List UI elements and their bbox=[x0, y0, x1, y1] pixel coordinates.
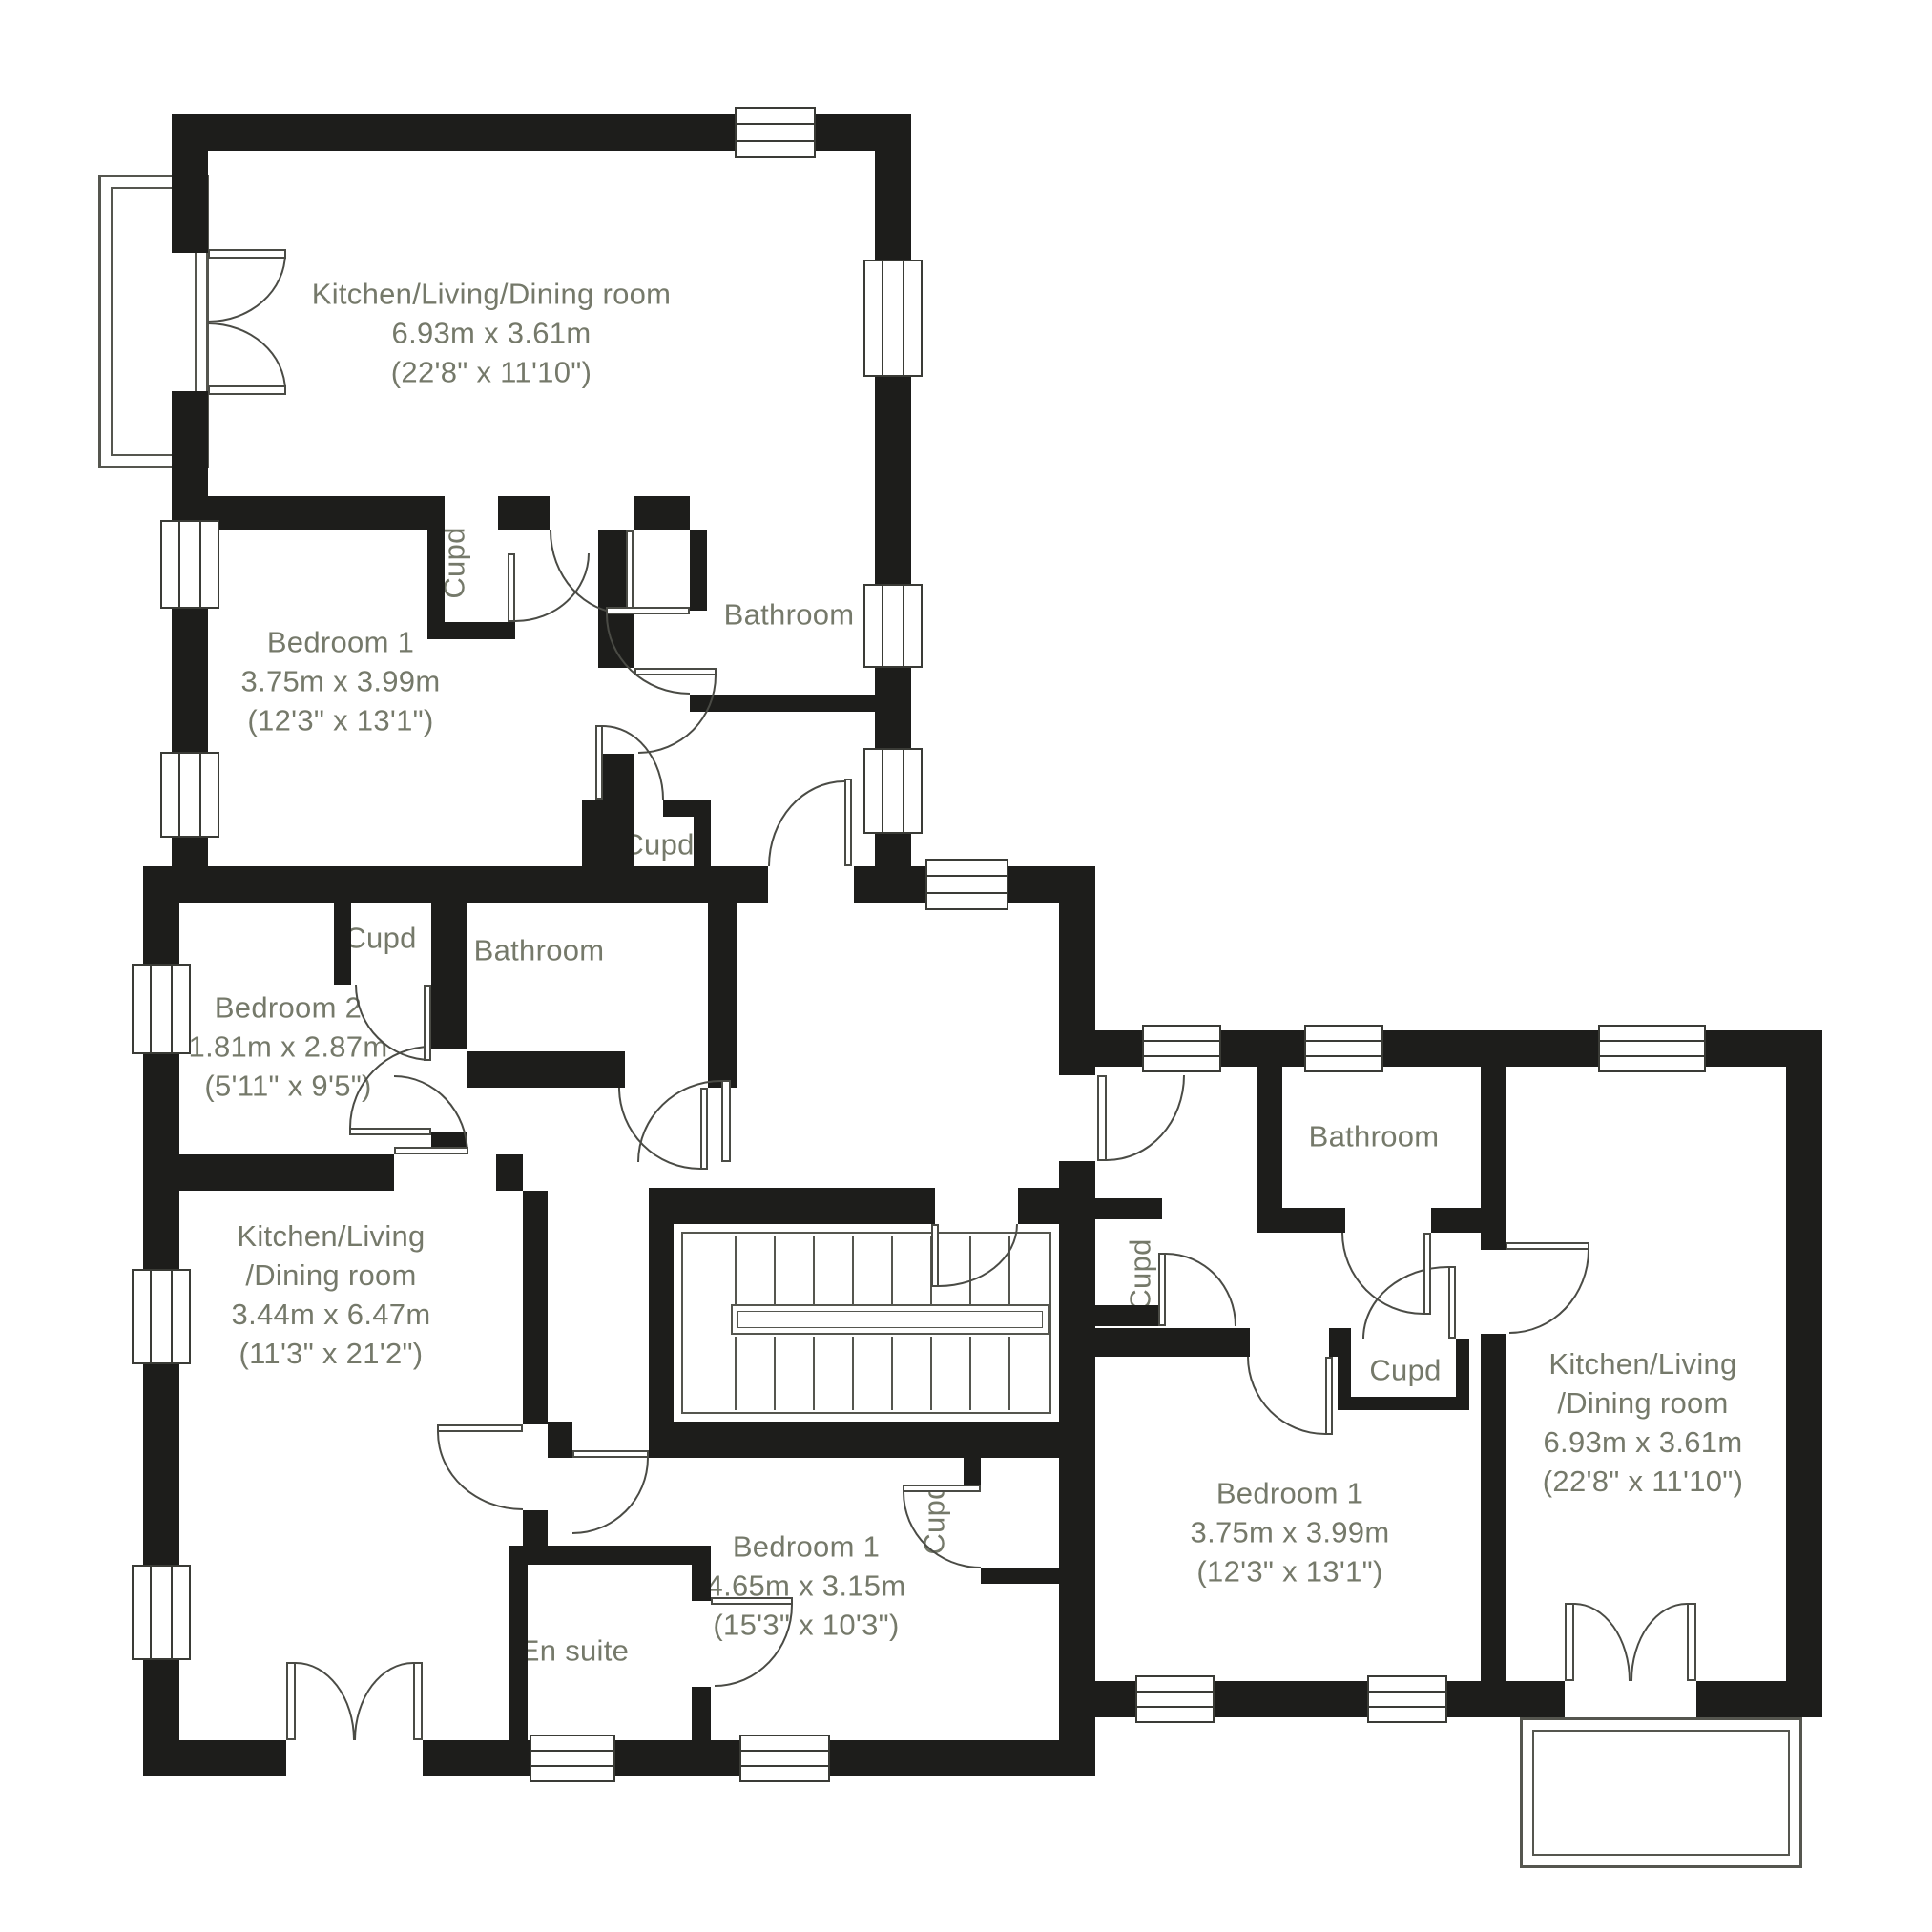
balcony-inner-line bbox=[1532, 1730, 1790, 1856]
room-name: Cupd bbox=[1369, 1352, 1441, 1391]
door-swing-arc bbox=[1107, 1075, 1185, 1161]
wall bbox=[875, 377, 911, 584]
room-label-ensuite: En suite bbox=[520, 1632, 629, 1672]
door-leaf bbox=[1565, 1603, 1574, 1681]
room-name: Kitchen/Living/Dining room bbox=[312, 276, 672, 315]
wall bbox=[143, 1054, 179, 1269]
window bbox=[1135, 1675, 1215, 1723]
room-label-cupd-b1: Cupd bbox=[344, 920, 416, 959]
window bbox=[1367, 1675, 1447, 1723]
wall bbox=[143, 1364, 179, 1565]
room-label-cupd-c1: Cupd bbox=[1122, 1238, 1161, 1310]
wall bbox=[523, 1191, 548, 1424]
window bbox=[132, 964, 191, 1054]
wall bbox=[509, 1565, 528, 1740]
wall bbox=[875, 668, 911, 748]
door-swing-arc bbox=[1166, 1253, 1236, 1326]
balcony-bottom-right bbox=[1520, 1717, 1802, 1868]
wall bbox=[172, 609, 208, 752]
wall bbox=[1456, 1339, 1469, 1410]
door-leaf bbox=[1158, 1253, 1166, 1326]
room-dim-imperial: (11'3" x 21'2") bbox=[232, 1335, 431, 1374]
window-glass-line bbox=[1599, 1040, 1705, 1057]
door-swing-arc bbox=[515, 553, 590, 622]
window-glass-line bbox=[740, 1750, 829, 1767]
room-name: Kitchen/Living bbox=[1543, 1345, 1743, 1384]
wall bbox=[1383, 1030, 1598, 1067]
window-glass-line bbox=[150, 965, 172, 1053]
room-label-kitchen-mid: Kitchen/Living /Dining room 3.44m x 6.47… bbox=[232, 1217, 431, 1374]
window bbox=[530, 1735, 615, 1782]
wall bbox=[1095, 1681, 1135, 1717]
room-dim-metric: 6.93m x 3.61m bbox=[312, 315, 672, 354]
wall bbox=[1257, 1067, 1282, 1208]
room-name: Bedroom 1 bbox=[707, 1528, 906, 1568]
room-name: Kitchen/Living bbox=[232, 1217, 431, 1257]
door-leaf bbox=[700, 1088, 708, 1170]
wall bbox=[467, 1051, 625, 1088]
window bbox=[160, 752, 219, 838]
room-label-kitchen-top: Kitchen/Living/Dining room 6.93m x 3.61m… bbox=[312, 276, 672, 393]
wall bbox=[172, 114, 208, 253]
wall bbox=[143, 903, 179, 964]
door-swing-arc bbox=[437, 1432, 523, 1510]
wall bbox=[649, 1224, 674, 1422]
room-dim-imperial: (12'3" x 13'1") bbox=[241, 701, 441, 740]
wall bbox=[1481, 1334, 1506, 1681]
room-name: Cupd bbox=[344, 920, 416, 959]
handrail-inner-line bbox=[737, 1311, 1043, 1328]
room-name: Bedroom 1 bbox=[1191, 1475, 1390, 1514]
window-glass-line bbox=[926, 875, 1008, 894]
door-swing-arc bbox=[208, 253, 286, 322]
door-leaf bbox=[626, 530, 634, 614]
wall bbox=[509, 1546, 711, 1565]
window-glass-line bbox=[1305, 1040, 1382, 1057]
wall bbox=[548, 1422, 572, 1458]
door-leaf bbox=[349, 1128, 431, 1135]
window bbox=[1304, 1025, 1383, 1072]
room-label-bedroom1-top: Bedroom 1 3.75m x 3.99m (12'3" x 13'1") bbox=[241, 624, 441, 741]
room-dim-metric: 3.44m x 6.47m bbox=[232, 1296, 431, 1335]
window-glass-line bbox=[178, 753, 200, 837]
door-swing-arc bbox=[1247, 1357, 1325, 1435]
wall bbox=[690, 530, 707, 611]
wall bbox=[427, 622, 515, 639]
door-leaf bbox=[711, 1597, 793, 1605]
window bbox=[1598, 1025, 1706, 1072]
door-leaf bbox=[437, 1424, 523, 1432]
staircase-lower-flight bbox=[735, 1337, 1048, 1410]
room-name: Bathroom bbox=[1309, 1118, 1440, 1157]
wall bbox=[208, 496, 427, 530]
door-swing-arc bbox=[715, 1605, 793, 1687]
window-glass-line bbox=[1368, 1691, 1446, 1708]
wall bbox=[615, 1740, 739, 1776]
wall bbox=[981, 1568, 1059, 1584]
door-leaf bbox=[508, 553, 515, 622]
staircase-handrail bbox=[731, 1304, 1049, 1335]
wall bbox=[634, 496, 690, 530]
door-swing-arc bbox=[903, 1492, 981, 1568]
wall bbox=[690, 695, 875, 712]
wall bbox=[692, 1565, 711, 1601]
window-glass-line bbox=[736, 123, 815, 142]
room-label-bathroom-right: Bathroom bbox=[1309, 1118, 1440, 1157]
door-swing-arc bbox=[768, 780, 844, 866]
wall bbox=[1095, 1198, 1162, 1219]
room-dim-metric: 3.75m x 3.99m bbox=[1191, 1514, 1390, 1553]
room-dim-imperial: (22'8" x 11'10") bbox=[1543, 1463, 1743, 1502]
door-leaf bbox=[931, 1224, 939, 1287]
wall bbox=[1215, 1681, 1367, 1717]
door-swing-arc bbox=[606, 614, 690, 695]
wall bbox=[1095, 1328, 1250, 1357]
wall bbox=[1221, 1030, 1304, 1067]
door-leaf bbox=[208, 249, 286, 259]
wall bbox=[179, 1154, 394, 1191]
window bbox=[863, 584, 923, 668]
room-name: /Dining room bbox=[1543, 1384, 1743, 1423]
window-glass-line bbox=[882, 260, 904, 376]
room-name: Bedroom 1 bbox=[241, 624, 441, 663]
wall bbox=[1059, 903, 1095, 1075]
window-glass-line bbox=[882, 749, 904, 833]
wall bbox=[423, 1740, 530, 1776]
door-leaf bbox=[208, 385, 286, 395]
room-dim-metric: 1.81m x 2.87m bbox=[189, 1028, 388, 1068]
door-leaf bbox=[424, 985, 431, 1061]
wall bbox=[1095, 1030, 1142, 1067]
door-swing-arc bbox=[1574, 1603, 1631, 1681]
wall bbox=[1018, 1188, 1059, 1224]
door-leaf bbox=[721, 1080, 731, 1162]
wall bbox=[498, 496, 550, 530]
door-leaf bbox=[903, 1485, 981, 1492]
window bbox=[739, 1735, 830, 1782]
window-glass-line bbox=[1143, 1040, 1220, 1057]
wall bbox=[694, 800, 711, 866]
wall bbox=[1447, 1681, 1565, 1717]
window-glass-line bbox=[1136, 1691, 1214, 1708]
window-glass-line bbox=[530, 1750, 614, 1767]
wall bbox=[692, 1687, 711, 1740]
door-leaf bbox=[286, 1662, 296, 1740]
room-label-bedroom1-right: Bedroom 1 3.75m x 3.99m (12'3" x 13'1") bbox=[1191, 1475, 1390, 1592]
room-label-bathroom-mid: Bathroom bbox=[474, 932, 605, 971]
room-dim-metric: 6.93m x 3.61m bbox=[1543, 1423, 1743, 1463]
wall bbox=[143, 866, 768, 903]
window-glass-line bbox=[150, 1270, 172, 1363]
door-swing-arc bbox=[572, 1458, 649, 1534]
door-leaf bbox=[1448, 1266, 1456, 1339]
wall bbox=[708, 903, 737, 1088]
door-leaf bbox=[413, 1662, 423, 1740]
wall bbox=[582, 800, 599, 866]
wall bbox=[1059, 1161, 1095, 1776]
wall bbox=[1481, 1067, 1506, 1250]
door-swing-arc bbox=[208, 322, 286, 391]
window-glass-line bbox=[882, 585, 904, 667]
wall bbox=[427, 496, 445, 639]
room-dim-metric: 3.75m x 3.99m bbox=[241, 663, 441, 702]
window-glass-line bbox=[150, 1566, 172, 1659]
door-swing-arc bbox=[1631, 1603, 1687, 1681]
room-label-kitchen-right: Kitchen/Living /Dining room 6.93m x 3.61… bbox=[1543, 1345, 1743, 1502]
door-leaf bbox=[595, 725, 603, 800]
wall bbox=[830, 1740, 1095, 1776]
wall bbox=[1338, 1397, 1469, 1410]
room-label-cupd-c2: Cupd bbox=[1369, 1352, 1441, 1391]
wall bbox=[649, 1188, 935, 1224]
wall bbox=[875, 114, 911, 260]
wall bbox=[523, 1510, 548, 1546]
door-swing-arc bbox=[1509, 1250, 1589, 1334]
wall bbox=[1095, 1305, 1162, 1326]
wall bbox=[649, 1422, 1059, 1458]
wall bbox=[334, 903, 351, 985]
wall bbox=[172, 391, 208, 520]
room-name: Bathroom bbox=[724, 596, 855, 635]
window bbox=[132, 1269, 191, 1364]
room-dim-imperial: (22'8" x 11'10") bbox=[312, 353, 672, 392]
wall bbox=[431, 903, 467, 1049]
wall bbox=[172, 114, 735, 151]
window bbox=[160, 520, 219, 609]
door-swing-arc bbox=[296, 1662, 355, 1740]
door-leaf bbox=[1423, 1233, 1431, 1315]
wall bbox=[1786, 1030, 1822, 1717]
door-leaf bbox=[606, 607, 690, 614]
window bbox=[925, 859, 1008, 910]
wall bbox=[1008, 866, 1095, 903]
wall bbox=[854, 866, 925, 903]
wall bbox=[496, 1154, 523, 1191]
wall bbox=[143, 1740, 286, 1776]
door-leaf bbox=[634, 668, 717, 675]
door-leaf bbox=[572, 1450, 649, 1458]
window bbox=[863, 748, 923, 834]
room-name: /Dining room bbox=[232, 1257, 431, 1296]
door-leaf bbox=[1325, 1357, 1333, 1435]
room-dim-imperial: (12'3" x 13'1") bbox=[1191, 1552, 1390, 1591]
door-leaf bbox=[394, 1147, 468, 1154]
door-leaf bbox=[1097, 1075, 1107, 1161]
door-leaf bbox=[844, 779, 852, 866]
room-name: En suite bbox=[520, 1632, 629, 1672]
wall bbox=[1696, 1681, 1822, 1717]
window bbox=[735, 107, 816, 158]
window bbox=[1142, 1025, 1221, 1072]
room-name: Cupd bbox=[1122, 1238, 1161, 1310]
window-glass-line bbox=[178, 521, 200, 608]
floor-plan: Kitchen/Living/Dining room 6.93m x 3.61m… bbox=[0, 0, 1932, 1932]
room-name: Bathroom bbox=[474, 932, 605, 971]
window bbox=[132, 1565, 191, 1660]
door-leaf bbox=[1506, 1242, 1589, 1250]
wall bbox=[1257, 1208, 1345, 1233]
door-swing-arc bbox=[354, 1662, 413, 1740]
room-label-bathroom-top: Bathroom bbox=[724, 596, 855, 635]
window bbox=[863, 260, 923, 377]
door-leaf bbox=[1687, 1603, 1696, 1681]
